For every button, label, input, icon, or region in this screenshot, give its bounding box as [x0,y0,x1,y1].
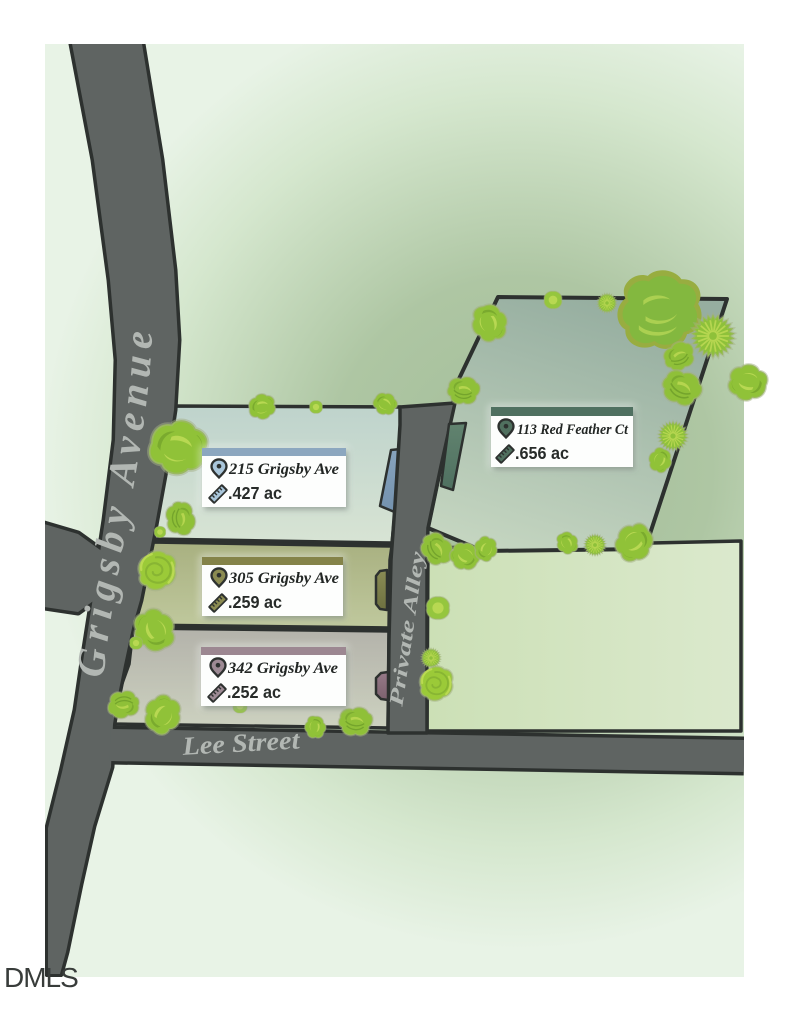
svg-text:215 Grigsby Ave: 215 Grigsby Ave [228,461,339,478]
svg-text:113 Red Feather Ct: 113 Red Feather Ct [517,422,629,438]
svg-text:DMLS: DMLS [4,962,78,993]
svg-text:342 Grigsby Ave: 342 Grigsby Ave [227,660,338,677]
svg-text:.259 ac: .259 ac [228,592,282,612]
svg-text:.656 ac: .656 ac [515,443,569,463]
svg-text:.252 ac: .252 ac [227,682,281,702]
svg-text:.427 ac: .427 ac [228,483,282,503]
svg-text:305 Grigsby Ave: 305 Grigsby Ave [228,570,339,587]
